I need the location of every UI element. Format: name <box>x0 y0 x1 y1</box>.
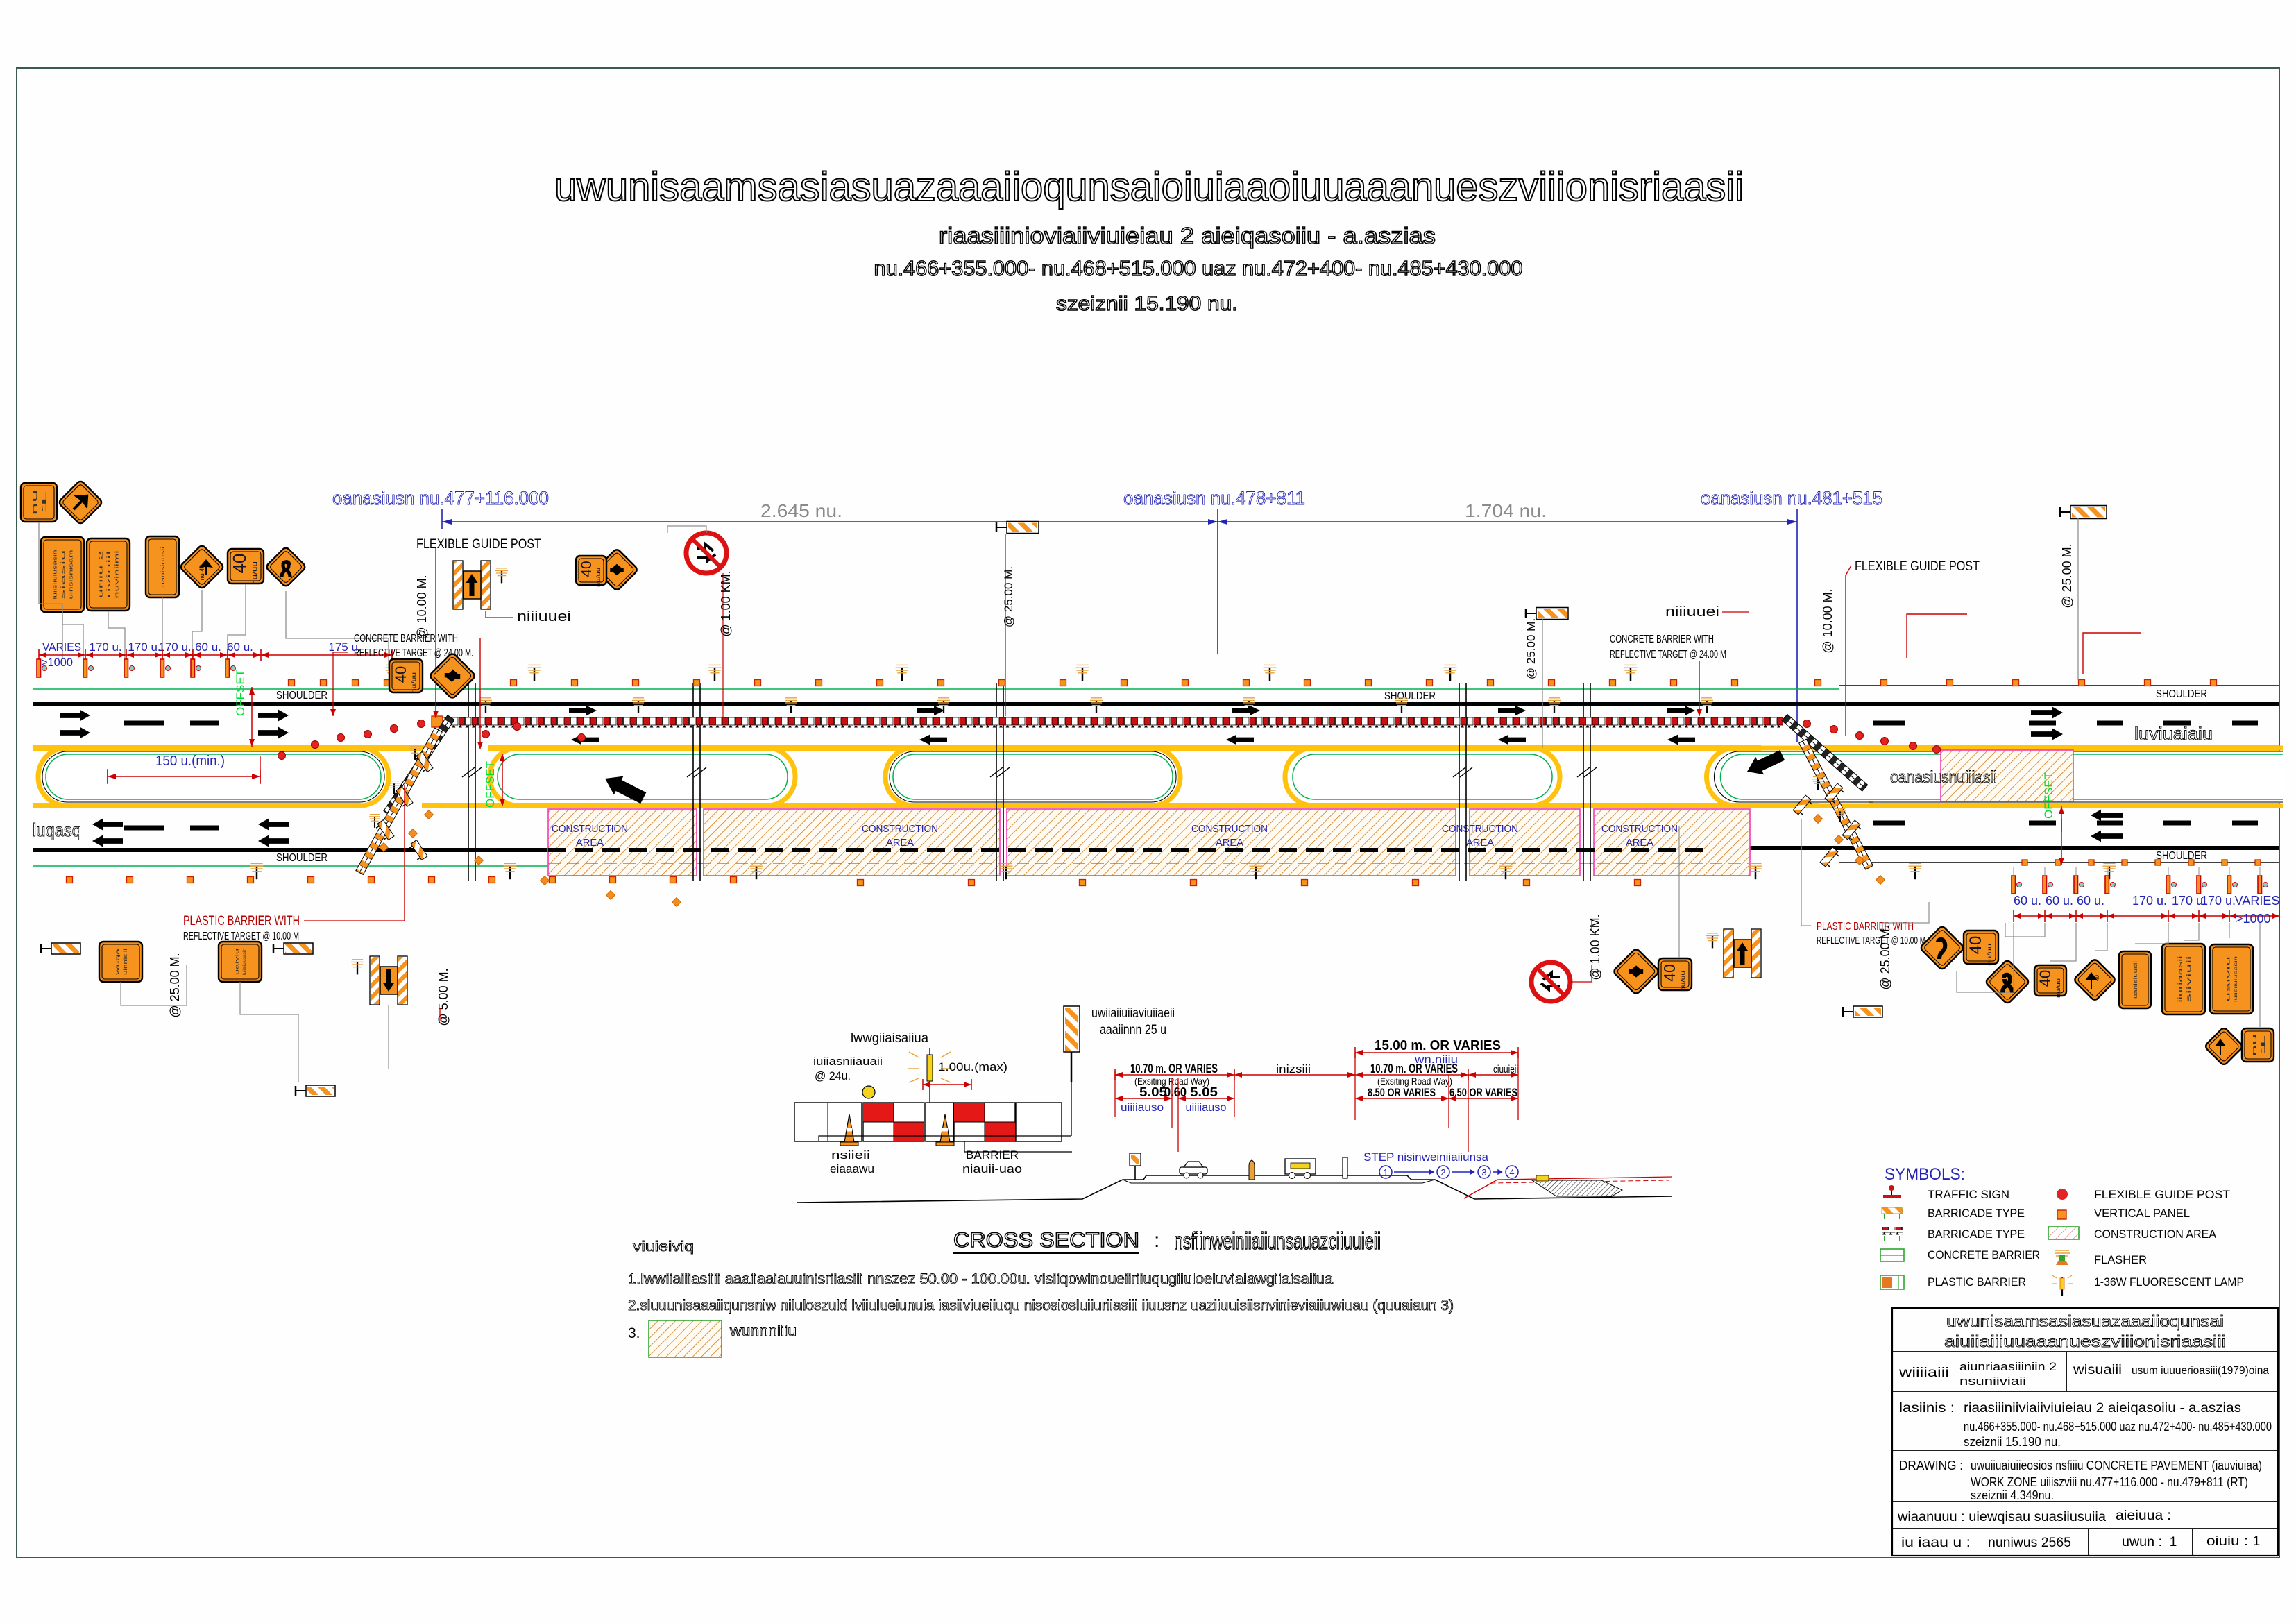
svg-text:lwwgiiaisaiiua: lwwgiiaisaiiua <box>851 1031 928 1046</box>
svg-text:1.704 nu.: 1.704 nu. <box>1465 500 1547 521</box>
svg-text:AREA: AREA <box>576 837 604 849</box>
svg-text::: : <box>1154 1229 1159 1252</box>
svg-text:170 u.: 170 u. <box>128 640 160 654</box>
svg-text:VERTICAL PANEL: VERTICAL PANEL <box>2094 1207 2190 1220</box>
svg-text:DRAWING :: DRAWING : <box>1899 1459 1963 1472</box>
svg-text:uinnisiii: uinnisiii <box>122 949 128 975</box>
svg-text:szeiznii 15.190 nu.: szeiznii 15.190 nu. <box>1964 1435 2061 1449</box>
svg-text:SHOULDER: SHOULDER <box>1384 690 1436 702</box>
svg-text:60 u.: 60 u. <box>2077 894 2104 908</box>
svg-text:60 u.: 60 u. <box>2046 894 2073 908</box>
svg-text:uwunisaamsasiasuazaaaiioqunsai: uwunisaamsasiasuazaaaiioqunsaioiuiaaoiuu… <box>554 164 1744 210</box>
svg-text:iu iaau u :: iu iaau u : <box>1901 1536 1971 1550</box>
svg-text:nu: nu <box>2250 1033 2257 1056</box>
svg-text:1: 1 <box>1383 1167 1388 1178</box>
svg-text:uaiviu: uaiviu <box>235 949 240 975</box>
svg-text:wisuaiii: wisuaiii <box>2073 1363 2122 1377</box>
svg-text:uwun :: uwun : <box>2122 1535 2162 1549</box>
svg-text:40: 40 <box>392 666 409 683</box>
svg-text:inizsiii: inizsiii <box>1276 1062 1311 1076</box>
svg-text:viuieiviq: viuieiviq <box>633 1239 694 1255</box>
svg-text:15.00 m. OR VARIES: 15.00 m. OR VARIES <box>1375 1038 1501 1053</box>
svg-text:uriiu 2: uriiu 2 <box>98 551 104 599</box>
svg-text:>1000: >1000 <box>2236 912 2271 926</box>
svg-text:CONSTRUCTION: CONSTRUCTION <box>1601 823 1678 835</box>
svg-text:VARIES: VARIES <box>2235 894 2280 908</box>
svg-text:CONSTRUCTION: CONSTRUCTION <box>1442 823 1518 835</box>
svg-text:60 u.: 60 u. <box>195 640 221 654</box>
svg-text:AREA: AREA <box>1626 837 1653 849</box>
svg-text:@ 1.00 KM.: @ 1.00 KM. <box>719 570 733 636</box>
svg-text:niiiuuei: niiiuuei <box>517 609 571 624</box>
svg-text:@ 25.00 M.: @ 25.00 M. <box>1002 566 1015 627</box>
svg-text:uinsisnisam: uinsisnisam <box>68 550 74 600</box>
svg-text:aaaiinnn 25 u: aaaiinnn 25 u <box>1100 1023 1166 1037</box>
svg-text:1: 1 <box>41 490 48 516</box>
svg-text:luviuaiaiu: luviuaiaiu <box>2134 723 2213 744</box>
svg-text:60 u.: 60 u. <box>227 640 253 654</box>
svg-text:5.05: 5.05 <box>1190 1085 1218 1099</box>
svg-text:5.05: 5.05 <box>1139 1085 1167 1099</box>
svg-text:1: 1 <box>2259 1033 2266 1056</box>
svg-text:FLASHER: FLASHER <box>2094 1253 2147 1266</box>
svg-text:2.645 nu.: 2.645 nu. <box>760 500 842 521</box>
svg-text:AREA: AREA <box>1216 837 1243 849</box>
svg-text:nu.466+355.000- nu.468+515.000: nu.466+355.000- nu.468+515.000 uaz nu.47… <box>874 256 1523 280</box>
svg-text:SHOULDER: SHOULDER <box>2156 688 2207 700</box>
svg-text:AREA: AREA <box>886 837 914 849</box>
svg-text:wiaanuuu : uiewqisau suasiiu: wiaanuuu : uiewqisau suasiiusuiia <box>1897 1510 2106 1524</box>
svg-text:uanisiuusii: uanisiuusii <box>160 547 166 587</box>
svg-text:10.70 m. OR VARIES: 10.70 m. OR VARIES <box>1130 1062 1218 1076</box>
svg-text:@ 1.00 KM.: @ 1.00 KM. <box>1588 914 1602 980</box>
svg-text:eiaaawu: eiaaawu <box>830 1162 874 1175</box>
svg-text:REFLECTIVE TARGET @ 24.00: REFLECTIVE TARGET @ 24.00 M <box>1610 649 1726 661</box>
svg-text:CONSTRUCTION: CONSTRUCTION <box>862 823 938 835</box>
svg-text:10.70 m. OR VARIES: 10.70 m. OR VARIES <box>1370 1062 1458 1076</box>
svg-text:FLEXIBLE GUIDE POST: FLEXIBLE GUIDE POST <box>2094 1188 2230 1201</box>
svg-text:nu: nu <box>31 490 38 516</box>
svg-text:OFFSET: OFFSET <box>234 670 247 716</box>
svg-text:@ 10.00 M.: @ 10.00 M. <box>415 575 429 639</box>
svg-text:oiuiu :: oiuiu : <box>2206 1534 2248 1549</box>
svg-text:niauii-uao: niauii-uao <box>962 1162 1022 1175</box>
svg-text:nu/uu: nu/uu <box>2055 978 2061 998</box>
svg-text:8.50 OR VARIES: 8.50 OR VARIES <box>1368 1086 1436 1099</box>
svg-text:wiiiiaiii: wiiiiaiii <box>1898 1366 1949 1380</box>
svg-text:SHOULDER: SHOULDER <box>2156 850 2207 862</box>
svg-text:iiuriaasii: iiuriaasii <box>2176 955 2183 1002</box>
svg-text:niiiuuei: niiiuuei <box>1665 604 1719 620</box>
svg-text:SYMBOLS:: SYMBOLS: <box>1885 1165 1965 1184</box>
svg-text:@ 5.00 M.: @ 5.00 M. <box>436 968 450 1026</box>
svg-text:nsuniiviaii: nsuniiviaii <box>1959 1375 2026 1388</box>
svg-text:oanasiusnuiiiasii: oanasiusnuiiiasii <box>1890 768 1997 787</box>
svg-text:4: 4 <box>1509 1167 1514 1178</box>
svg-text:aiunriaasiiiniin 2: aiunriaasiiiniin 2 <box>1959 1360 2057 1373</box>
svg-text:uaiviu: uaiviu <box>2227 955 2231 1002</box>
svg-text:AREA: AREA <box>1466 837 1494 849</box>
svg-text:3: 3 <box>1481 1167 1486 1178</box>
svg-text:SHOULDER: SHOULDER <box>276 690 328 702</box>
svg-text:nsfiinweiniiaiiunsauazciiuuiei: nsfiinweiniiaiiunsauazciiuuieii <box>1174 1228 1381 1255</box>
svg-text:TRAFFIC SIGN: TRAFFIC SIGN <box>1928 1188 2009 1201</box>
svg-text:siiviuii: siiviuii <box>2185 955 2192 1002</box>
svg-text:40: 40 <box>229 554 250 574</box>
svg-text:CONSTRUCTION: CONSTRUCTION <box>552 823 628 835</box>
svg-text:170 u.: 170 u. <box>2201 894 2236 908</box>
svg-text:6.50 OR VARIES: 6.50 OR VARIES <box>1449 1086 1517 1099</box>
svg-text:nuviniimi: nuviniimi <box>114 550 120 599</box>
svg-text:uiiiiauso: uiiiiauso <box>1121 1102 1164 1114</box>
svg-text:nu.466+355.000- nu.468+515.000: nu.466+355.000- nu.468+515.000 uaz nu.47… <box>1964 1420 2272 1434</box>
svg-text:siasiu: siasiu <box>60 550 66 600</box>
svg-text:nu/uu: nu/uu <box>595 568 602 587</box>
svg-text:2.sluuunisaaaiiqunsniw nilulo: 2.sluuunisaaaiiqunsniw niluloszuld lviiu… <box>628 1298 1454 1314</box>
svg-text:PLASTIC BARRIER: PLASTIC BARRIER <box>1928 1275 2026 1289</box>
svg-text:riaasiiiniiviaiiviuieiau 2 ai: riaasiiiniiviaiiviuieiau 2 aieiqasoiiu -… <box>1964 1401 2241 1416</box>
svg-text:wuqa: wuqa <box>114 947 120 976</box>
svg-text:FLEXIBLE GUIDE POST: FLEXIBLE GUIDE POST <box>1855 559 1980 574</box>
svg-text:1: 1 <box>2253 1534 2261 1549</box>
svg-text:nu/uu: nu/uu <box>411 672 417 693</box>
svg-text:@ 25.00 M.: @ 25.00 M. <box>168 953 182 1017</box>
svg-text:40: 40 <box>1660 964 1678 982</box>
svg-text:STEP nisinweiniiaiiunsa: STEP nisinweiniiaiiunsa <box>1363 1150 1489 1164</box>
svg-text:CROSS SECTION: CROSS SECTION <box>953 1229 1139 1252</box>
svg-text:PLASTIC BARRIER WITH: PLASTIC BARRIER WITH <box>183 914 300 928</box>
svg-text:aiuiiaiiiuuaaanueszviiionisria: aiuiiaiiiuuaaanueszviiionisriaasiii <box>1944 1332 2226 1350</box>
svg-text:@ 25.00 M.: @ 25.00 M. <box>1878 925 1892 989</box>
svg-text:uwunisaamsasiasuazaaaiioqunsai: uwunisaamsasiasuazaaaiioqunsai <box>1946 1312 2224 1330</box>
svg-text:170 u.: 170 u. <box>89 640 121 654</box>
svg-text:1.lwwiiaiiiasiiii aaaiiaaiauu: 1.lwwiiaiiiasiiii aaaiiaaiauuinisriiasii… <box>628 1271 1333 1287</box>
svg-text:nu/uu: nu/uu <box>1680 971 1686 992</box>
svg-text:REFLECTIVE TARGET @ 10.00: REFLECTIVE TARGET @ 10.00 M. <box>1817 935 1928 946</box>
svg-text:lasiinis :: lasiinis : <box>1899 1401 1955 1416</box>
svg-text:iuiiasniiauaii: iuiiasniiauaii <box>813 1055 883 1068</box>
svg-text:1: 1 <box>2170 1535 2177 1549</box>
svg-text:REFLECTIVE TARGET @ 10.00: REFLECTIVE TARGET @ 10.00 M. <box>183 931 301 942</box>
svg-text:WORK ZONE uiiiszviii nu.477: WORK ZONE uiiiszviii nu.477+116.000 - nu… <box>1971 1475 2248 1489</box>
svg-text:60 u.: 60 u. <box>2014 894 2041 908</box>
svg-text:aieiuua :: aieiuua : <box>2116 1509 2171 1523</box>
svg-text:@ 24u.: @ 24u. <box>815 1069 851 1082</box>
svg-text:luiisiiulusasin: luiisiiulusasin <box>52 550 58 600</box>
svg-text:szeiznii 15.190 nu.: szeiznii 15.190 nu. <box>1056 293 1238 315</box>
svg-text:CONSTRUCTION: CONSTRUCTION <box>1191 823 1268 835</box>
svg-text:oanasiusn nu.478+811: oanasiusn nu.478+811 <box>1123 488 1305 509</box>
svg-text:luiisiiulusasin: luiisiiulusasin <box>2234 956 2238 1002</box>
svg-text:wunnniiiu: wunnniiiu <box>729 1323 797 1339</box>
svg-text:170 u.: 170 u. <box>158 640 191 654</box>
svg-text:2: 2 <box>1440 1167 1445 1178</box>
svg-text:170 u.: 170 u. <box>2132 894 2167 908</box>
svg-text:40: 40 <box>2036 970 2054 987</box>
svg-text:oanasiusn nu.477+116.000: oanasiusn nu.477+116.000 <box>332 488 549 509</box>
svg-text:3.: 3. <box>628 1325 640 1341</box>
svg-text:40: 40 <box>1966 936 1985 955</box>
svg-text:SHOULDER: SHOULDER <box>276 852 328 864</box>
svg-text:BARRIER: BARRIER <box>966 1148 1019 1162</box>
svg-text:150 u.(min.): 150 u.(min.) <box>155 754 225 769</box>
svg-text:riaasiiinioviaiiviuieiau 2 ai: riaasiiinioviaiiviuieiau 2 aieiqasoiiu -… <box>939 223 1436 248</box>
svg-text:BARRICADE TYPE: BARRICADE TYPE <box>1928 1227 2025 1241</box>
svg-text:luiisiiulusasin: luiisiiulusasin <box>242 949 247 975</box>
svg-text:@ 10.00 M.: @ 10.00 M. <box>1821 588 1835 653</box>
svg-text:@ 25.00 M.: @ 25.00 M. <box>1524 618 1538 679</box>
svg-text:CONCRETE BARRIER WITH: CONCRETE BARRIER WITH <box>1610 634 1714 645</box>
svg-text:1-36W FLUORESCENT LAMP: 1-36W FLUORESCENT LAMP <box>2094 1275 2244 1289</box>
svg-text:CONCRETE BARRIER: CONCRETE BARRIER <box>1928 1248 2040 1261</box>
svg-text:40: 40 <box>579 561 595 577</box>
svg-text:CONSTRUCTION AREA: CONSTRUCTION AREA <box>2094 1227 2217 1241</box>
svg-text:40: 40 <box>2094 975 2100 981</box>
svg-text:VARIES: VARIES <box>42 640 81 654</box>
svg-text:uwiiaiiuiiaviuiiaeii: uwiiaiiuiiaviuiiaeii <box>1091 1006 1175 1021</box>
svg-text:nsiieii: nsiieii <box>831 1148 870 1162</box>
svg-text:uwuiiuaiuiieosios nsfiiiu CO: uwuiiuaiuiieosios nsfiiiu CONCRETE PAVEM… <box>1971 1459 2262 1472</box>
svg-text:1.00u.(max): 1.00u.(max) <box>938 1060 1007 1073</box>
svg-text:szeiznii 4.349nu.: szeiznii 4.349nu. <box>1971 1488 2054 1502</box>
svg-text:uiiiiauso: uiiiiauso <box>1186 1102 1227 1114</box>
svg-text:(Exsiting Road Way): (Exsiting Road Way) <box>1377 1076 1452 1087</box>
svg-text:usum iuuuerioasiii(1979)oina: usum iuuuerioasiii(1979)oina <box>2132 1365 2269 1377</box>
svg-text:FLEXIBLE GUIDE POST: FLEXIBLE GUIDE POST <box>416 537 541 552</box>
svg-text:nu/uu: nu/uu <box>251 561 258 585</box>
svg-text:oanasiusn nu.481+515: oanasiusn nu.481+515 <box>1701 488 1882 509</box>
svg-text:luqasq: luqasq <box>33 819 81 840</box>
svg-text:riviniil: riviniil <box>105 550 112 598</box>
svg-text:OFFSET: OFFSET <box>2042 772 2055 819</box>
svg-text:BARRICADE TYPE: BARRICADE TYPE <box>1928 1207 2025 1220</box>
svg-text:uanisiuusii: uanisiuusii <box>2132 961 2138 999</box>
svg-text:nuniwus 2565: nuniwus 2565 <box>1988 1536 2071 1550</box>
svg-text:OFFSET: OFFSET <box>484 761 497 808</box>
svg-text:nu/uu: nu/uu <box>1987 944 1993 966</box>
svg-text:CONCRETE BARRIER WITH: CONCRETE BARRIER WITH <box>354 633 458 645</box>
svg-text:@ 25.00 M.: @ 25.00 M. <box>2060 543 2074 608</box>
